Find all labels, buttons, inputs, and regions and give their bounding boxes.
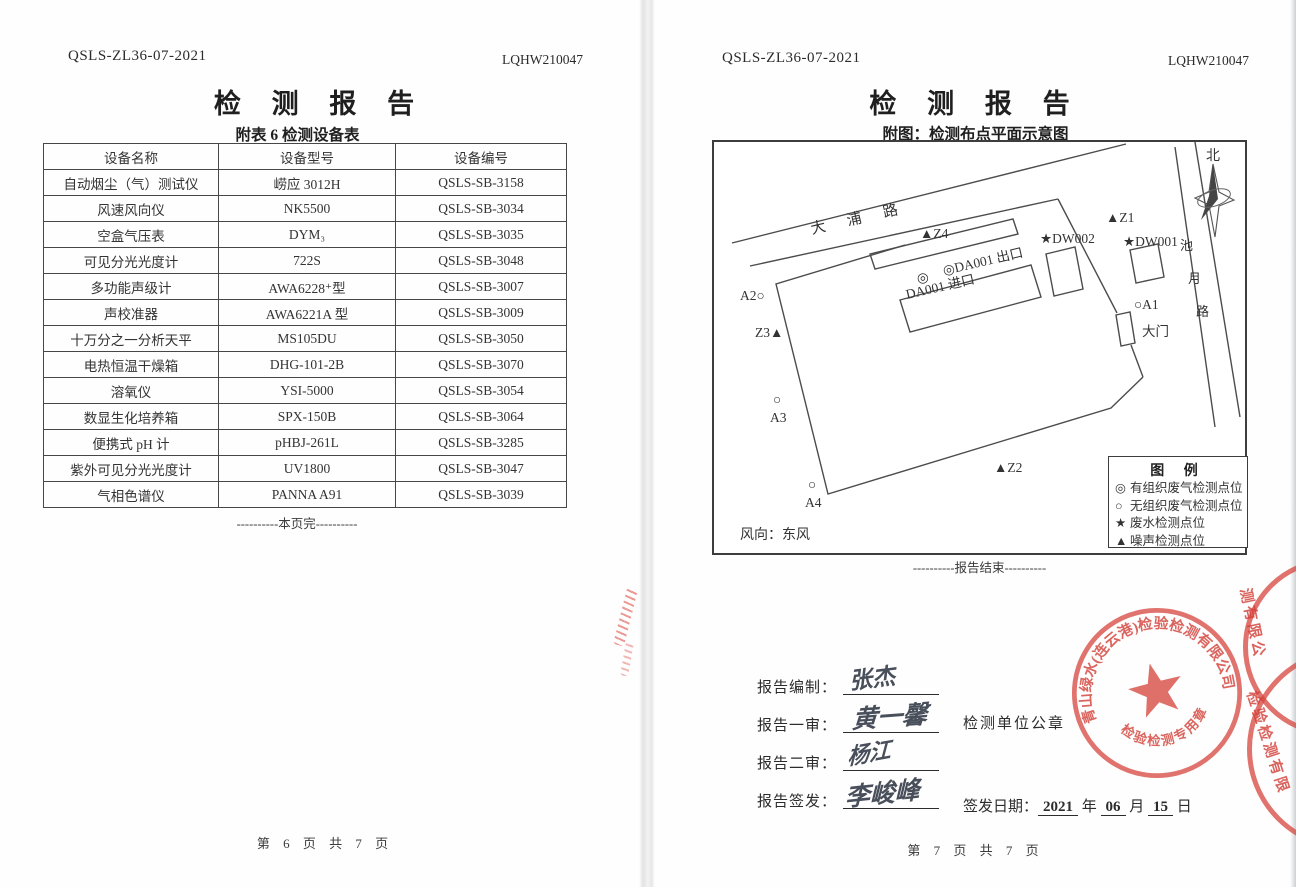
north-label: 北 <box>1206 148 1220 164</box>
chiyue-road-char: 月 <box>1188 271 1201 286</box>
signature-row: 报告编制：张杰 <box>757 676 939 697</box>
table-cell: 空盒气压表 <box>44 222 219 248</box>
table-cell: QSLS-SB-3054 <box>396 378 567 404</box>
legend-symbol-icon: ★ <box>1115 515 1130 533</box>
diagram-marker: ★DW001 <box>1123 234 1178 249</box>
page-number-left: 第 6 页 共 7 页 <box>0 833 650 852</box>
table-row: 风速风向仪NK5500QSLS-SB-3034 <box>44 196 567 222</box>
stamp-bleed-mark <box>620 642 634 677</box>
table-cell: pHBJ-261L <box>219 430 396 456</box>
table-cell: AWA6228⁺型 <box>219 274 396 300</box>
doc-code-left: QSLS-ZL36-07-2021 <box>68 48 207 65</box>
scanned-report: QSLS-ZL36-07-2021 LQHW210047 检 测 报 告 附表 … <box>0 0 1296 887</box>
legend-box: 图 例 ◎有组织废气检测点位○无组织废气检测点位★废水检测点位▲噪声检测点位 <box>1108 456 1248 548</box>
table-cell: MS105DU <box>219 326 396 352</box>
table-cell: 便携式 pH 计 <box>44 430 219 456</box>
equipment-table-head: 设备名称设备型号设备编号 <box>44 144 567 170</box>
column-header: 设备型号 <box>219 144 396 170</box>
legend-item: ○无组织废气检测点位 <box>1115 498 1241 516</box>
page-title-left: 检 测 报 告 <box>0 82 640 121</box>
issue-day: 15 <box>1148 799 1173 816</box>
page-title-right: 检 测 报 告 <box>655 82 1296 121</box>
issue-date-label: 签发日期： <box>963 799 1038 815</box>
table-cell: QSLS-SB-3007 <box>396 274 567 300</box>
diagram-marker: ★DW002 <box>1040 231 1095 246</box>
table-row: 紫外可见分光光度计UV1800QSLS-SB-3047 <box>44 456 567 482</box>
table-cell: 电热恒温干燥箱 <box>44 352 219 378</box>
seal-type-text: 检验检测专用章 <box>1116 701 1217 759</box>
seal-caption: 检测单位公章 <box>963 712 1065 733</box>
table-cell: 数显生化培养箱 <box>44 404 219 430</box>
signature-block: 报告编制：张杰报告一审：黄一馨报告二审：杨江报告签发：李峻峰 <box>757 676 997 836</box>
table-cell: QSLS-SB-3048 <box>396 248 567 274</box>
wind-direction-note: 风向：东风 <box>740 524 810 544</box>
report-no-right: LQHW210047 <box>1168 53 1249 69</box>
report-no-left: LQHW210047 <box>502 52 583 68</box>
page-seam <box>639 0 655 887</box>
diagram-marker: A3 <box>770 410 787 425</box>
page-end-note: ----------本页完---------- <box>43 513 551 532</box>
table-cell: DHG-101-2B <box>219 352 396 378</box>
table-cell: QSLS-SB-3035 <box>396 222 567 248</box>
table-cell: YSI-5000 <box>219 378 396 404</box>
equipment-table: 设备名称设备型号设备编号 自动烟尘（气）测试仪崂应 3012HQSLS-SB-3… <box>43 143 567 508</box>
diagram-marker: Z3▲ <box>755 325 783 340</box>
stamp-bleed-mark <box>613 588 638 647</box>
legend-item: ▲噪声检测点位 <box>1115 533 1241 551</box>
table-row: 便携式 pH 计pHBJ-261LQSLS-SB-3285 <box>44 430 567 456</box>
chiyue-road-char: 池 <box>1180 238 1193 253</box>
table-header-row: 设备名称设备型号设备编号 <box>44 144 567 170</box>
table-cell: 溶氧仪 <box>44 378 219 404</box>
table-caption: 附表 6 检测设备表 <box>0 123 595 145</box>
handwritten-signature: 黄一馨 <box>851 695 928 736</box>
report-end-note: ----------报告结束---------- <box>712 557 1247 576</box>
day-unit: 日 <box>1177 799 1192 815</box>
table-cell: QSLS-SB-3047 <box>396 456 567 482</box>
table-cell: 722S <box>219 248 396 274</box>
building <box>1130 244 1164 283</box>
signature-line: 李峻峰 <box>843 792 939 809</box>
boundary-line <box>1131 345 1143 377</box>
table-cell: QSLS-SB-3050 <box>396 326 567 352</box>
table-cell: 自动烟尘（气）测试仪 <box>44 170 219 196</box>
signature-label: 报告一审： <box>757 718 837 734</box>
legend-item: ★废水检测点位 <box>1115 515 1241 533</box>
site-plan-diagram: 大浦路 北 ▲ <box>712 140 1247 555</box>
table-cell: 声校准器 <box>44 300 219 326</box>
table-row: 空盒气压表DYM₃QSLS-SB-3035 <box>44 222 567 248</box>
legend-items: ◎有组织废气检测点位○无组织废气检测点位★废水检测点位▲噪声检测点位 <box>1115 480 1241 550</box>
table-row: 可见分光光度计722SQSLS-SB-3048 <box>44 248 567 274</box>
signature-row: 报告签发：李峻峰 <box>757 790 939 811</box>
month-unit: 月 <box>1129 799 1144 815</box>
signature-line: 杨江 <box>843 754 939 771</box>
legend-label: 废水检测点位 <box>1130 516 1205 530</box>
legend-label: 无组织废气检测点位 <box>1130 499 1243 513</box>
diagram-marker: ○ <box>773 392 781 407</box>
diagram-marker: ○ <box>808 477 816 492</box>
signature-label: 报告编制： <box>757 680 837 696</box>
column-header: 设备名称 <box>44 144 219 170</box>
table-cell: 风速风向仪 <box>44 196 219 222</box>
table-cell: SPX-150B <box>219 404 396 430</box>
diagram-marker: ▲Z4 <box>920 226 949 241</box>
table-cell: 气相色谱仪 <box>44 482 219 508</box>
dapu-road-label: 大浦路 <box>809 196 921 238</box>
signature-line: 黄一馨 <box>843 716 939 733</box>
page-number-right: 第 7 页 共 7 页 <box>655 840 1296 859</box>
table-cell: QSLS-SB-3034 <box>396 196 567 222</box>
table-cell: 多功能声级计 <box>44 274 219 300</box>
equipment-table-body: 自动烟尘（气）测试仪崂应 3012HQSLS-SB-3158风速风向仪NK550… <box>44 170 567 508</box>
diagram-marker: 大门 <box>1142 324 1169 339</box>
table-cell: QSLS-SB-3039 <box>396 482 567 508</box>
legend-label: 噪声检测点位 <box>1130 534 1205 548</box>
diagram-marker: A2○ <box>740 288 765 303</box>
table-row: 电热恒温干燥箱DHG-101-2BQSLS-SB-3070 <box>44 352 567 378</box>
signature-label: 报告二审： <box>757 756 837 772</box>
legend-symbol-icon: ◎ <box>1115 480 1130 498</box>
table-cell: QSLS-SB-3009 <box>396 300 567 326</box>
table-cell: 十万分之一分析天平 <box>44 326 219 352</box>
table-cell: QSLS-SB-3064 <box>396 404 567 430</box>
handwritten-signature: 杨江 <box>847 732 891 772</box>
table-cell: QSLS-SB-3158 <box>396 170 567 196</box>
issue-date: 签发日期：2021 年 06 月 15 日 <box>963 795 1192 816</box>
table-cell: QSLS-SB-3070 <box>396 352 567 378</box>
doc-code-right: QSLS-ZL36-07-2021 <box>722 50 861 67</box>
legend-item: ◎有组织废气检测点位 <box>1115 480 1241 498</box>
diagram-marker: ▲Z2 <box>994 460 1022 475</box>
column-header: 设备编号 <box>396 144 567 170</box>
table-cell: AWA6221A 型 <box>219 300 396 326</box>
table-row: 自动烟尘（气）测试仪崂应 3012HQSLS-SB-3158 <box>44 170 567 196</box>
building <box>1046 247 1083 296</box>
table-row: 气相色谱仪PANNA A91QSLS-SB-3039 <box>44 482 567 508</box>
table-cell: 紫外可见分光光度计 <box>44 456 219 482</box>
table-cell: NK5500 <box>219 196 396 222</box>
company-seal: 青山绿水(连云港)检验检测有限公司 检验检测专用章 <box>1042 578 1272 808</box>
handwritten-signature: 张杰 <box>847 657 897 696</box>
handwritten-signature: 李峻峰 <box>845 770 920 814</box>
diagram-marker: DA001 进口 <box>904 272 976 302</box>
issue-year: 2021 <box>1038 799 1078 816</box>
table-cell: QSLS-SB-3285 <box>396 430 567 456</box>
legend-label: 有组织废气检测点位 <box>1130 481 1243 495</box>
table-cell: PANNA A91 <box>219 482 396 508</box>
table-cell: 可见分光光度计 <box>44 248 219 274</box>
diagram-marker: A4 <box>805 495 822 510</box>
chiyue-road-label: 池月路 <box>1180 238 1209 319</box>
table-cell: DYM₃ <box>219 222 396 248</box>
legend-symbol-icon: ○ <box>1115 498 1130 516</box>
chiyue-road-char: 路 <box>1196 304 1209 319</box>
diagram-marker: ○A1 <box>1134 297 1159 312</box>
legend-symbol-icon: ▲ <box>1115 533 1130 551</box>
table-row: 声校准器AWA6221A 型QSLS-SB-3009 <box>44 300 567 326</box>
legend-title: 图 例 <box>1115 460 1241 480</box>
table-cell: 崂应 3012H <box>219 170 396 196</box>
table-row: 数显生化培养箱SPX-150BQSLS-SB-3064 <box>44 404 567 430</box>
table-cell: UV1800 <box>219 456 396 482</box>
table-row: 多功能声级计AWA6228⁺型QSLS-SB-3007 <box>44 274 567 300</box>
table-row: 溶氧仪YSI-5000QSLS-SB-3054 <box>44 378 567 404</box>
diagram-marker: ▲Z1 <box>1106 210 1134 225</box>
gate-rect <box>1116 312 1135 346</box>
table-row: 十万分之一分析天平MS105DUQSLS-SB-3050 <box>44 326 567 352</box>
signature-line: 张杰 <box>843 678 939 695</box>
seal-star-icon <box>1123 657 1188 720</box>
signature-row: 报告一审：黄一馨 <box>757 714 939 735</box>
signature-label: 报告签发： <box>757 794 837 810</box>
